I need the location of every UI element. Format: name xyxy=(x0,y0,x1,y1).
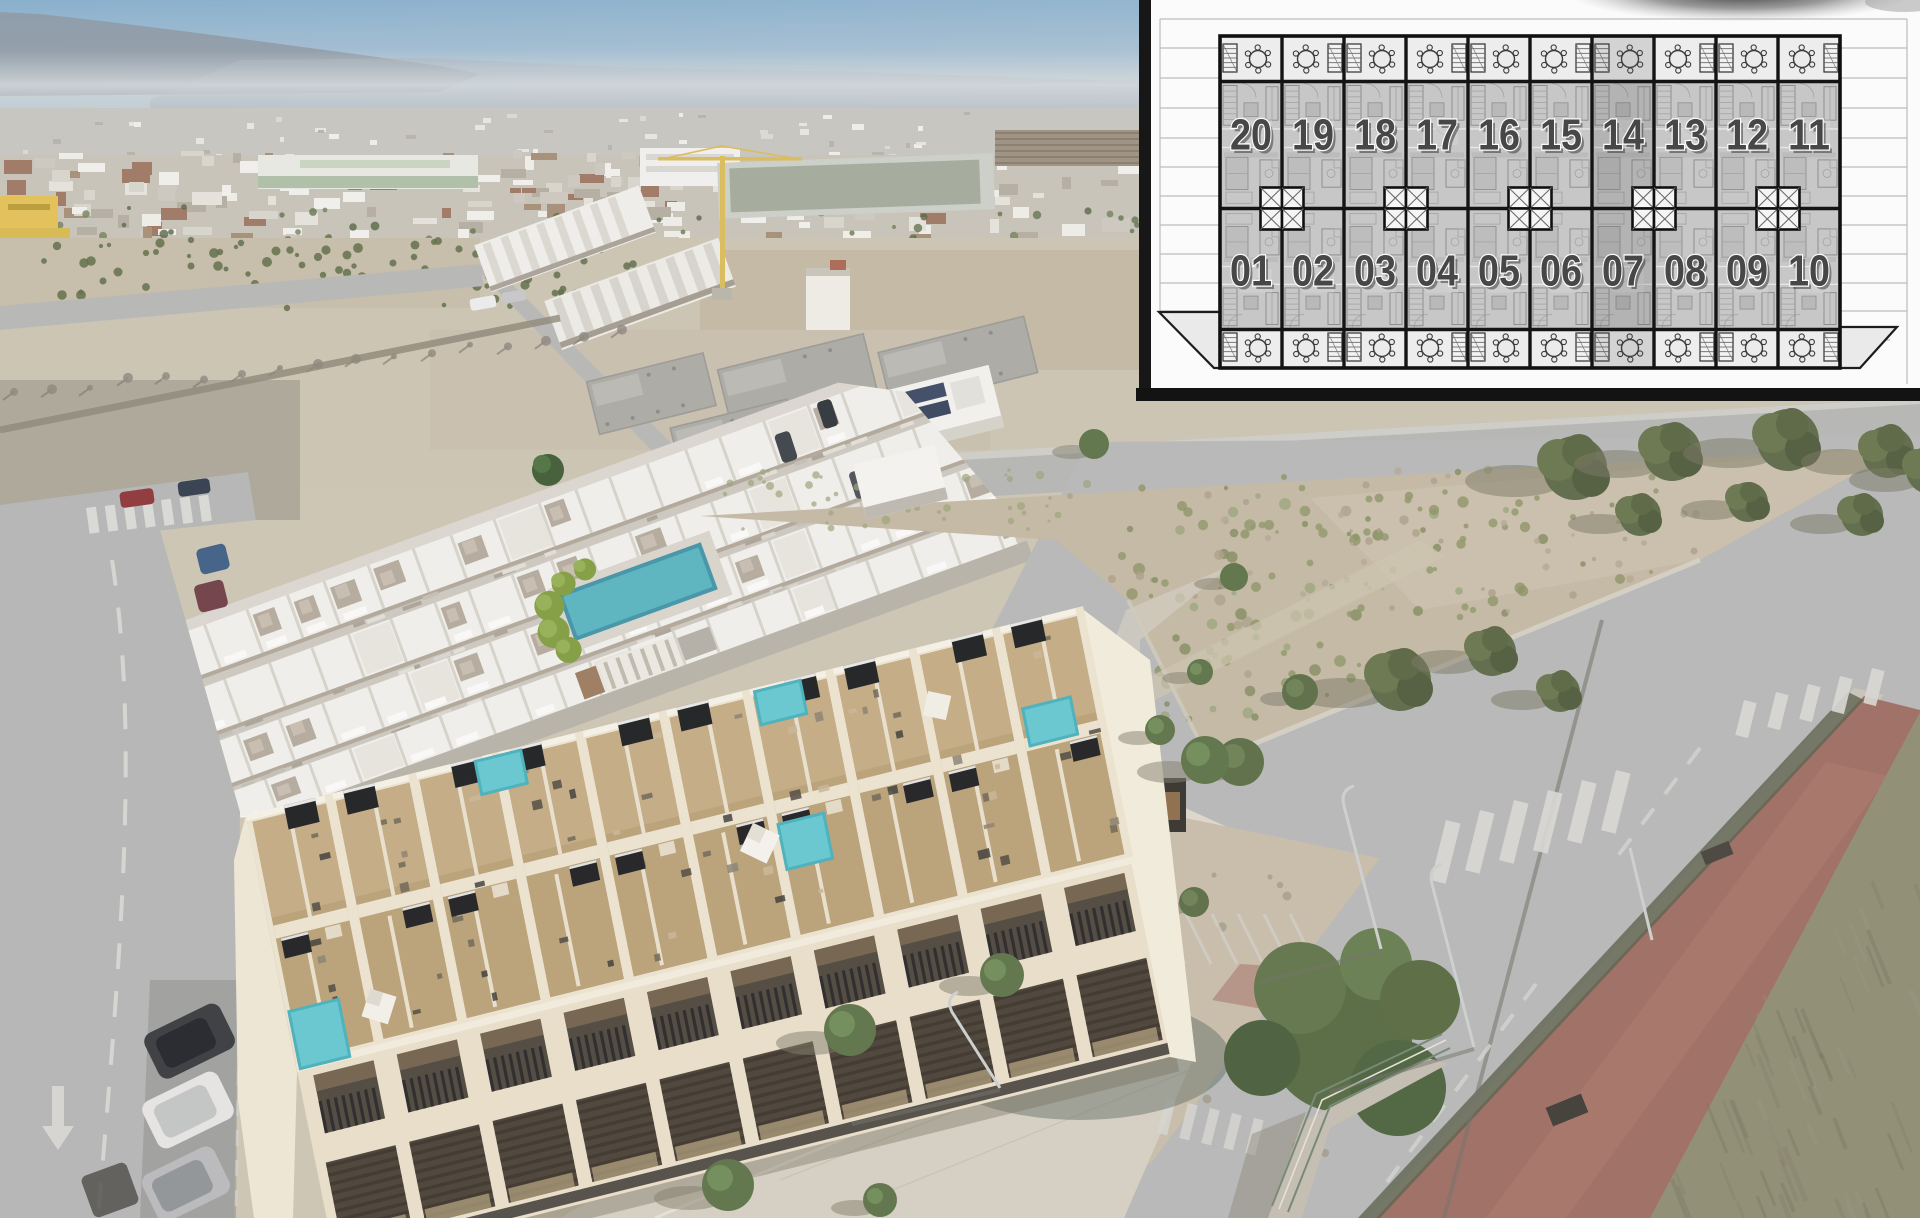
svg-text:08: 08 xyxy=(1664,247,1706,296)
svg-text:02: 02 xyxy=(1292,247,1334,296)
svg-text:03: 03 xyxy=(1354,247,1396,296)
svg-text:06: 06 xyxy=(1540,247,1582,296)
svg-text:10: 10 xyxy=(1788,247,1830,296)
svg-text:19: 19 xyxy=(1292,111,1334,160)
svg-text:04: 04 xyxy=(1416,247,1458,296)
svg-text:17: 17 xyxy=(1416,111,1458,160)
svg-text:05: 05 xyxy=(1478,247,1520,296)
svg-text:15: 15 xyxy=(1540,111,1582,160)
svg-text:11: 11 xyxy=(1788,111,1830,160)
svg-text:16: 16 xyxy=(1478,111,1520,160)
svg-text:13: 13 xyxy=(1664,111,1706,160)
svg-text:01: 01 xyxy=(1230,247,1272,296)
svg-text:14: 14 xyxy=(1602,111,1644,160)
svg-text:09: 09 xyxy=(1726,247,1768,296)
svg-text:20: 20 xyxy=(1230,111,1272,160)
svg-text:07: 07 xyxy=(1602,247,1644,296)
svg-text:18: 18 xyxy=(1354,111,1396,160)
svg-text:12: 12 xyxy=(1726,111,1768,160)
